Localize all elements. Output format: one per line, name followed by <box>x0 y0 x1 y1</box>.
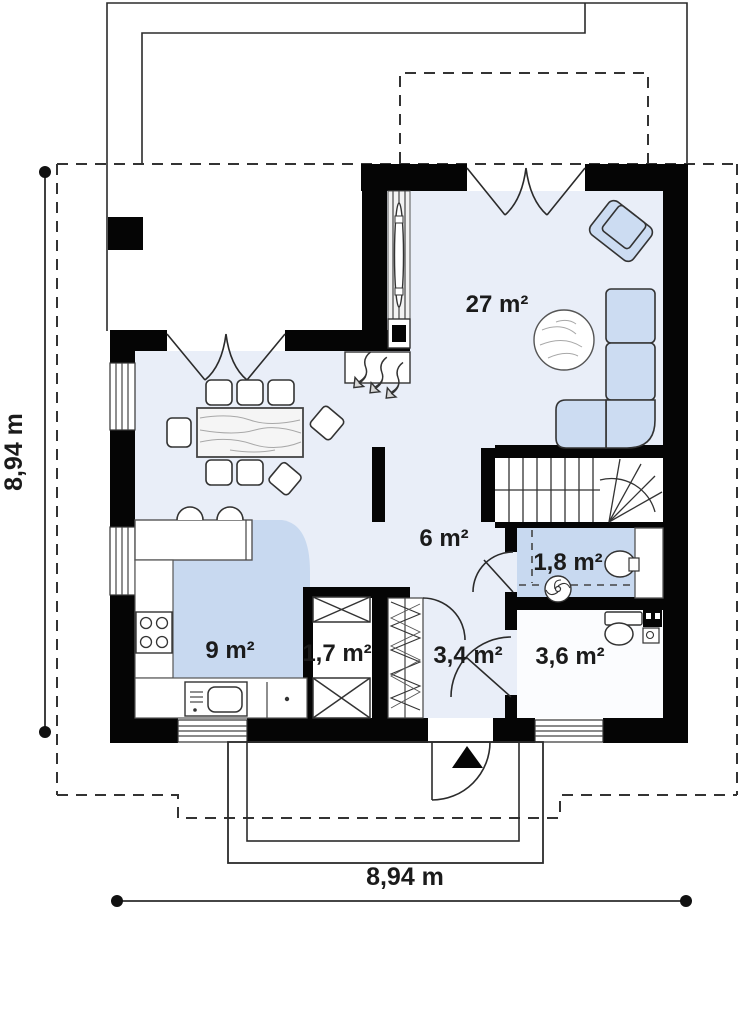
room-label-bathroom-small: 1,8 m² <box>533 549 602 576</box>
entrance-opening <box>428 718 493 743</box>
room-label-wc: 3,6 m² <box>535 643 604 670</box>
dimension-bottom-label: 8,94 m <box>366 863 444 891</box>
coat-rack-hatch <box>388 598 423 718</box>
toilet-bowl <box>605 623 633 645</box>
chimney <box>388 319 410 348</box>
entrance-door-swing <box>432 742 490 800</box>
kitchen-peninsula <box>135 520 252 560</box>
kitchen-sink <box>185 682 247 716</box>
entrance-arrow <box>452 746 483 768</box>
dining-table <box>197 408 303 457</box>
dimension-bottom: 8,94 m <box>111 863 692 907</box>
window-left-upper <box>110 363 135 430</box>
extractor-fan <box>545 576 571 602</box>
floor-plan-page: 8,94 m 8,94 m 27 m² 6 m² 1,8 m² 9 m² 1,7… <box>0 0 743 1024</box>
room-label-closet: 1,7 m² <box>302 640 371 667</box>
window-bottom-wc <box>535 720 603 742</box>
porch-outline <box>228 742 543 863</box>
window-bottom-kitchen <box>178 720 247 742</box>
dimension-left-label: 8,94 m <box>0 413 28 491</box>
radiator <box>388 191 410 319</box>
floor-plan-drawing: 8,94 m 8,94 m 27 m² 6 m² 1,8 m² 9 m² 1,7… <box>0 0 743 1024</box>
round-rug <box>534 310 594 370</box>
dormer-dashed-rect <box>400 73 648 163</box>
faucet <box>629 558 639 571</box>
overhang-bottom <box>57 795 737 818</box>
dimension-left: 8,94 m <box>0 166 51 738</box>
room-label-kitchen: 9 m² <box>205 637 254 664</box>
entrance <box>428 718 493 800</box>
room-label-hall: 6 m² <box>419 525 468 552</box>
roof-inner-line <box>142 3 585 164</box>
room-label-living: 27 m² <box>466 291 529 318</box>
terrace-pillar <box>108 217 143 250</box>
kitchen-stove <box>136 612 172 653</box>
room-label-entry-hall: 3,4 m² <box>433 642 502 669</box>
window-left-lower <box>110 527 135 595</box>
cabinet-handle <box>285 697 289 701</box>
